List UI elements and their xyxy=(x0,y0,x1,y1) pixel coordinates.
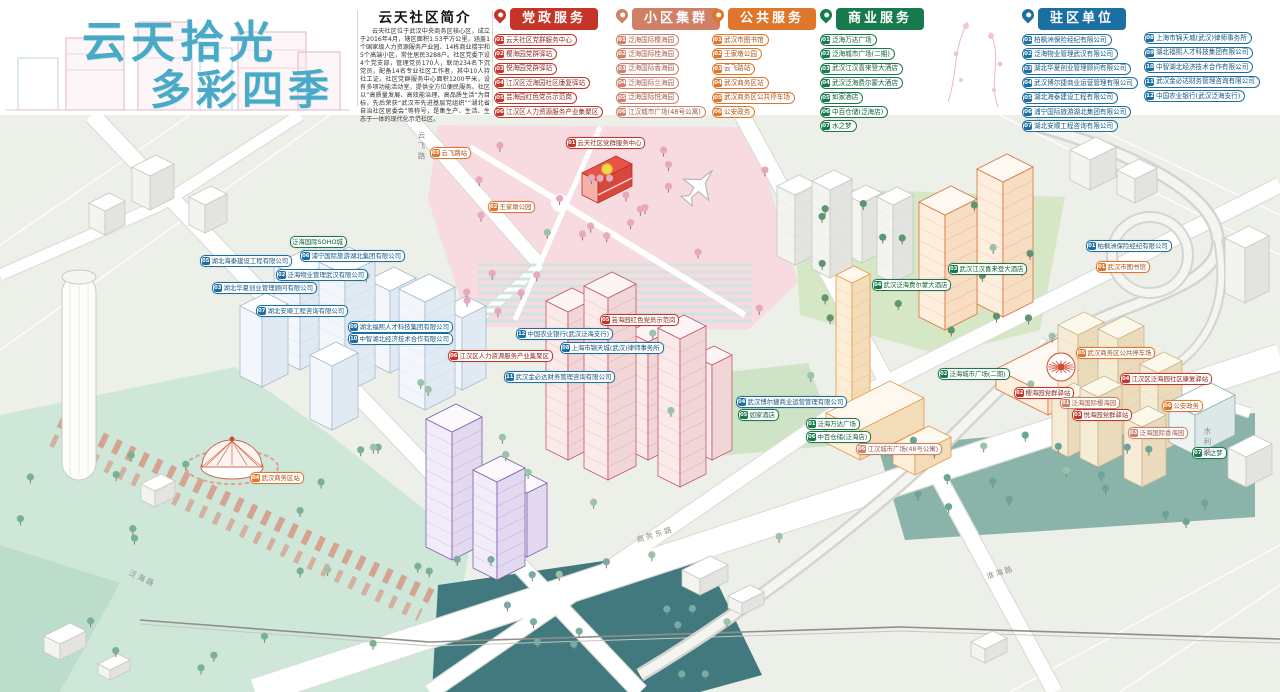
legend-item: 01柏枫洲保险经纪有限公司 xyxy=(1022,34,1112,46)
legend-item-label: 武汉市图书馆 xyxy=(724,37,764,44)
legend-item-label: 江汉区泛海园社区康复驿站 xyxy=(506,80,585,87)
legend-item-label: 悦海园党群驿站 xyxy=(506,65,552,72)
intro-body: 云天社区位于武汉中央商务区核心区，成立于2016年4月，辖区面积1.53平方公里… xyxy=(360,28,490,124)
legend-item: 05武汉商务区公共停车场 xyxy=(712,92,795,104)
legend-item: 05如家酒店 xyxy=(820,92,863,104)
legend-item-label: 江汉城市广场(48号公寓) xyxy=(628,109,701,116)
party-services-pin-icon xyxy=(492,7,509,24)
legend-item-number: 06 xyxy=(496,108,504,116)
legend-item-label: 泛海国际桂海园 xyxy=(628,51,674,58)
legend-item-number: 03 xyxy=(618,65,626,73)
road-name: 水利路 xyxy=(1202,427,1213,459)
legend-item: 03武汉江汉喜来登大酒店 xyxy=(820,63,903,75)
legend-item-label: 湖北安顺工程咨询有限公司 xyxy=(1034,123,1113,130)
legend-item-label: 泛海国际兰海园 xyxy=(628,80,674,87)
legend-item-label: 王家墩公园 xyxy=(724,51,757,58)
legend-item: 03云飞路站 xyxy=(712,63,755,75)
legend-item-label: 中国农业银行(武汉泛海支行) xyxy=(1156,93,1240,100)
legend-item-number: 05 xyxy=(496,94,504,102)
legend-item: 12中国农业银行(武汉泛海支行) xyxy=(1144,90,1245,102)
legend-item-number: 07 xyxy=(1024,122,1032,130)
map-area: 01云天社区党群服务中心05芸海园红色党员示范岗06江汉区人力资源服务产业集聚区… xyxy=(0,115,1280,692)
divider xyxy=(357,10,358,106)
legend-item-number: 01 xyxy=(496,36,504,44)
legend-title-resident-units: 驻区单位 xyxy=(1038,8,1126,30)
legend-item: 03泛海国际香海园 xyxy=(616,63,679,75)
legend-item: 02泛海国际桂海园 xyxy=(616,48,679,60)
legend-item-label: 武汉江汉喜来登大酒店 xyxy=(832,65,898,72)
legend-title-residential-clusters: 小区集群 xyxy=(632,8,720,30)
legend-item: 01泛海万达广场 xyxy=(820,34,877,46)
legend-title-business-services: 商业服务 xyxy=(836,8,924,30)
legend-item-label: 水之梦 xyxy=(832,123,852,130)
legend-item: 07水之梦 xyxy=(820,120,857,132)
logo: 云天拾光 多彩四季 xyxy=(0,0,356,115)
legend-item: 04武汉泛海费尔蒙大酒店 xyxy=(820,77,903,89)
intro-title: 云天社区简介 xyxy=(360,6,490,26)
legend-item-label: 武汉泛海费尔蒙大酒店 xyxy=(832,80,898,87)
legend-item-label: 武汉博尔捷商业运营管理有限公司 xyxy=(1034,80,1133,87)
legend-item: 03湖北华夏创业管理顾问有限公司 xyxy=(1022,63,1131,75)
legend-item-number: 07 xyxy=(822,122,830,130)
floral-doodle xyxy=(928,2,1028,112)
legend-item-number: 06 xyxy=(618,108,626,116)
logo-line-2: 多彩四季 xyxy=(150,56,334,116)
legend-group-business-services: 商业服务01泛海万达广场02泛海城市广场(二期)03武汉江汉喜来登大酒店04武汉… xyxy=(820,8,924,132)
legend-item-number: 04 xyxy=(822,79,830,87)
legend-item-number: 02 xyxy=(496,50,504,58)
legend-item: 07湖北安顺工程咨询有限公司 xyxy=(1022,120,1118,132)
legend-item: 11武汉金必达财务管理咨询有限公司 xyxy=(1144,76,1260,88)
legend-title-public-services: 公共服务 xyxy=(728,8,816,30)
legend-group-public-services: 公共服务01武汉市图书馆02王家墩公园03云飞路站04武汉商务区站05武汉商务区… xyxy=(712,8,816,118)
legend-item: 02王家墩公园 xyxy=(712,48,762,60)
business-services-pin-icon xyxy=(818,7,835,24)
intro-panel: 云天社区简介 云天社区位于武汉中央商务区核心区，成立于2016年4月，辖区面积1… xyxy=(360,6,490,112)
legend-item-number: 04 xyxy=(714,79,722,87)
legend-item-label: 公安政务 xyxy=(724,109,750,116)
legend-item: 01武汉市图书馆 xyxy=(712,34,769,46)
legend-item-number: 05 xyxy=(822,94,830,102)
legend-item-number: 05 xyxy=(714,94,722,102)
legend-item: 06江汉城市广场(48号公寓) xyxy=(616,106,706,118)
legend-item-label: 泛海国际樱海园 xyxy=(628,37,674,44)
legend-item-label: 云飞路站 xyxy=(724,65,750,72)
legend-item: 02泛海物业管理武汉有限公司 xyxy=(1022,48,1118,60)
legend-item-label: 武汉金必达财务管理咨询有限公司 xyxy=(1156,78,1255,85)
legend-item: 06江汉区人力资源服务产业集聚区 xyxy=(494,106,603,118)
legend-item-number: 01 xyxy=(822,36,830,44)
legend-item-number: 12 xyxy=(1146,92,1154,100)
legend-item-label: 柏枫洲保险经纪有限公司 xyxy=(1034,37,1107,44)
legend-item-label: 中智湖北经济技术合作有限公司 xyxy=(1156,64,1248,71)
legend-group-residential-clusters: 小区集群01泛海国际樱海园02泛海国际桂海园03泛海国际香海园04泛海国际兰海园… xyxy=(616,8,720,118)
legend-item-label: 泛海物业管理武汉有限公司 xyxy=(1034,51,1113,58)
legend-item: 05芸海园红色党员示范岗 xyxy=(494,92,577,104)
legend-item: 02樱海园党群驿站 xyxy=(494,48,557,60)
legend-item: 01云天社区党群服务中心 xyxy=(494,34,577,46)
legend-item-label: 芸海园红色党员示范岗 xyxy=(506,94,572,101)
legend-item-number: 06 xyxy=(714,108,722,116)
legend-item-number: 05 xyxy=(618,94,626,102)
legend-item: 10中智湖北经济技术合作有限公司 xyxy=(1144,61,1253,73)
legend-item-number: 04 xyxy=(618,79,626,87)
legend-item: 06浦宁国际旅游湖北集团有限公司 xyxy=(1022,106,1131,118)
legend-item-label: 云天社区党群服务中心 xyxy=(506,37,572,44)
legend-item: 05湖北海泰建设工程有限公司 xyxy=(1022,92,1118,104)
legend-item-number: 10 xyxy=(1146,63,1154,71)
legend-item-label: 泛海城市广场(二期) xyxy=(832,51,890,58)
legend-item-number: 01 xyxy=(714,36,722,44)
legend-item-label: 上海市锦天城(武汉)律师事务所 xyxy=(1156,35,1247,42)
residential-clusters-pin-icon xyxy=(614,7,631,24)
legend-item-number: 03 xyxy=(822,65,830,73)
legend-item-number: 08 xyxy=(1146,34,1154,42)
legend-item: 09湖北福熙人才科技集团有限公司 xyxy=(1144,47,1253,59)
public-services-pin-icon xyxy=(710,7,727,24)
legend-item: 04泛海国际兰海园 xyxy=(616,77,679,89)
legend-group-resident-units: 驻区单位01柏枫洲保险经纪有限公司02泛海物业管理武汉有限公司03湖北华夏创业管… xyxy=(1022,8,1138,132)
map-illustration xyxy=(0,115,1280,692)
legend-item-number: 02 xyxy=(822,50,830,58)
legend-item-label: 泛海国际香海园 xyxy=(628,65,674,72)
legend-item: 01泛海国际樱海园 xyxy=(616,34,679,46)
legend-item: 02泛海城市广场(二期) xyxy=(820,48,895,60)
legend-item-label: 泛海国际悦海园 xyxy=(628,94,674,101)
legend-item-label: 泛海万达广场 xyxy=(832,37,872,44)
legend-item-label: 武汉商务区站 xyxy=(724,80,764,87)
legend-item: 06公安政务 xyxy=(712,106,755,118)
legend-item: 03悦海园党群驿站 xyxy=(494,63,557,75)
legend-item-label: 江汉区人力资源服务产业集聚区 xyxy=(506,109,598,116)
legend-item-number: 03 xyxy=(496,65,504,73)
legend-item: 04武汉博尔捷商业运营管理有限公司 xyxy=(1022,77,1138,89)
legend-group-party-services: 党政服务01云天社区党群服务中心02樱海园党群驿站03悦海园党群驿站04江汉区泛… xyxy=(494,8,603,118)
legend-item: 04江汉区泛海园社区康复驿站 xyxy=(494,77,590,89)
divider xyxy=(492,10,493,106)
legend-item-label: 樱海园党群驿站 xyxy=(506,51,552,58)
legend-item: 05泛海国际悦海园 xyxy=(616,92,679,104)
legend-item-label: 湖北华夏创业管理顾问有限公司 xyxy=(1034,65,1126,72)
legend-item: 08上海市锦天城(武汉)律师事务所 xyxy=(1144,32,1252,44)
legend-item-label: 中百仓储(泛海店) xyxy=(832,109,883,116)
legend-title-party-services: 党政服务 xyxy=(510,8,598,30)
legend-item: 04武汉商务区站 xyxy=(712,77,769,89)
legend-item-label: 如家酒店 xyxy=(832,94,858,101)
legend-item-label: 湖北海泰建设工程有限公司 xyxy=(1034,94,1113,101)
legend-item-number: 03 xyxy=(714,65,722,73)
legend-item-label: 武汉商务区公共停车场 xyxy=(724,94,790,101)
legend-item-number: 02 xyxy=(714,50,722,58)
legend-item-number: 09 xyxy=(1146,49,1154,57)
legend-item-number: 11 xyxy=(1146,78,1154,86)
legend-item-number: 06 xyxy=(822,108,830,116)
community-map-poster: 云天拾光 多彩四季 云天社区简介 云天社区位于武汉中央商务区核心区，成立于201… xyxy=(0,0,1280,692)
header: 云天拾光 多彩四季 云天社区简介 云天社区位于武汉中央商务区核心区，成立于201… xyxy=(0,0,1280,115)
legend-item-label: 湖北福熙人才科技集团有限公司 xyxy=(1156,49,1248,56)
legend-item-label: 浦宁国际旅游湖北集团有限公司 xyxy=(1034,109,1126,116)
legend-item-number: 01 xyxy=(618,36,626,44)
legend-item-number: 04 xyxy=(496,79,504,87)
legend-item: 06中百仓储(泛海店) xyxy=(820,106,888,118)
road-name: 云飞路 xyxy=(416,131,427,163)
legend-item-number: 02 xyxy=(618,50,626,58)
